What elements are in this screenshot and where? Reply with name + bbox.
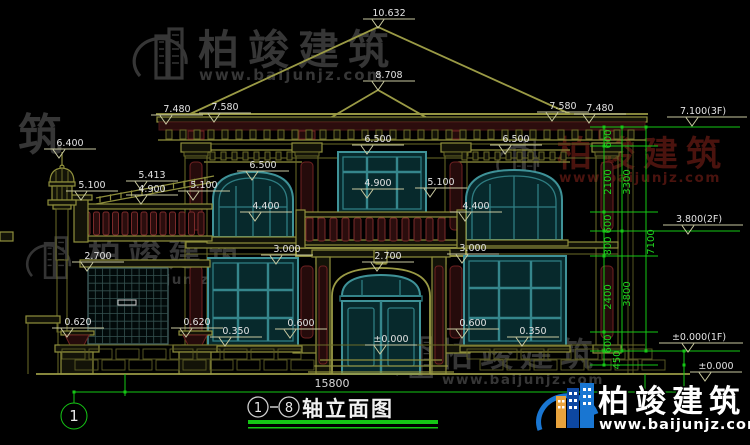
stone xyxy=(264,360,287,370)
baluster xyxy=(189,212,195,235)
baluster xyxy=(198,212,204,235)
dentil xyxy=(243,152,248,160)
baluster xyxy=(113,212,119,235)
marker-text: 6.500 xyxy=(249,160,276,171)
marker-text: ±0.000 xyxy=(373,334,408,345)
dentil xyxy=(320,130,326,139)
dentil xyxy=(232,152,237,160)
dentil xyxy=(265,152,270,160)
marker-text: 0.620 xyxy=(64,317,91,328)
vertical-dim-text: 450 xyxy=(612,350,623,369)
vertical-dim-text: 800 xyxy=(603,236,614,255)
baluster xyxy=(151,212,157,235)
marker-text: 5.413 xyxy=(138,170,165,181)
dentil xyxy=(462,152,467,160)
baluster xyxy=(426,218,433,241)
dentil xyxy=(306,130,312,139)
marker-text: ±0.000 xyxy=(698,361,733,372)
dim-tick xyxy=(621,230,624,233)
baluster xyxy=(414,218,421,241)
baluster xyxy=(366,218,373,241)
baluster xyxy=(318,218,325,241)
baluster xyxy=(141,212,147,235)
dentil xyxy=(539,152,544,160)
dentil xyxy=(404,130,410,139)
stone xyxy=(129,360,152,370)
dentil xyxy=(210,152,215,160)
marker-text: 3.000 xyxy=(459,243,486,254)
dentil xyxy=(287,152,292,160)
dentil xyxy=(446,130,452,139)
baluster xyxy=(179,212,185,235)
axis-bubble: 1 xyxy=(61,403,87,429)
pilaster-cap xyxy=(292,143,322,152)
marker-text: 7.580 xyxy=(549,101,576,112)
stone xyxy=(116,349,139,359)
marker-text: 7.480 xyxy=(163,104,190,115)
elevation-marker: 7.100(3F) xyxy=(667,106,747,126)
baluster xyxy=(170,212,176,235)
marker-text: 6.500 xyxy=(502,134,529,145)
baluster xyxy=(378,218,385,241)
dentil xyxy=(473,152,478,160)
marker-text: 5.100 xyxy=(78,180,105,191)
stone xyxy=(143,349,166,359)
title-underline-thick xyxy=(248,420,438,424)
vertical-dim-text: 600 xyxy=(603,129,614,148)
dentil xyxy=(495,152,500,160)
dentil xyxy=(222,130,228,139)
dentil xyxy=(628,130,634,139)
watermark-url-text: www.baijunjz.com xyxy=(559,170,721,186)
marker-text: 7.100(3F) xyxy=(680,106,726,117)
baluster xyxy=(342,218,349,241)
dentil xyxy=(544,130,550,139)
dentil xyxy=(236,130,242,139)
dentil xyxy=(278,130,284,139)
pilaster-neck xyxy=(184,152,208,156)
marker-text: 5.100 xyxy=(427,177,454,188)
axis-bubble-label: 1 xyxy=(69,407,79,425)
dentil xyxy=(561,152,566,160)
marker-text: 7.480 xyxy=(586,103,613,114)
watermark-url-text: www.baijunjz.com xyxy=(199,66,384,84)
marker-text: 4.400 xyxy=(462,201,489,212)
elevation-marker: ±0.000(1F) xyxy=(659,332,743,352)
marker-triangle xyxy=(699,373,711,382)
dim-tick xyxy=(603,331,606,334)
dim-tick xyxy=(603,126,606,129)
marker-text: 7.580 xyxy=(211,102,238,113)
marker-triangle xyxy=(686,118,698,127)
watermark-logo xyxy=(27,238,70,278)
total-width-dim: 15800 xyxy=(315,377,350,390)
stone xyxy=(156,360,179,370)
dentil xyxy=(558,130,564,139)
marker-text: 0.350 xyxy=(519,326,546,337)
dim-tick xyxy=(621,126,624,129)
stone xyxy=(210,360,233,370)
drawing-title: 轴立面图 xyxy=(302,397,394,421)
stone xyxy=(291,360,314,370)
vertical-dim-text: 3300 xyxy=(622,169,633,194)
marker-text: 5.100 xyxy=(190,180,217,191)
dim-tick xyxy=(603,364,606,367)
marker-text: 0.620 xyxy=(183,317,210,328)
marker-text: 3.000 xyxy=(273,244,300,255)
vertical-dim-text: 600 xyxy=(603,214,614,233)
title-axis-start: 1 xyxy=(254,401,262,416)
dentil xyxy=(432,130,438,139)
dentil xyxy=(614,130,620,139)
dim-tick xyxy=(683,364,686,367)
door-fanlight xyxy=(342,275,420,296)
marker-text: 0.600 xyxy=(287,318,314,329)
baluster xyxy=(306,218,313,241)
dentil xyxy=(488,130,494,139)
marker-text: 6.400 xyxy=(56,138,83,149)
title-axis-end: 8 xyxy=(285,401,293,416)
dentil xyxy=(194,130,200,139)
dim-tick xyxy=(683,350,686,353)
baluster xyxy=(438,218,445,241)
dim-tick xyxy=(645,350,648,353)
baluster xyxy=(390,218,397,241)
baluster xyxy=(132,212,138,235)
left-wing xyxy=(0,152,217,374)
window-1f-right xyxy=(460,256,570,352)
dentil xyxy=(474,130,480,139)
vertical-dim-text: 3800 xyxy=(622,281,633,306)
dentil xyxy=(530,130,536,139)
dim-tick xyxy=(603,211,606,214)
elevation-marker: 4.900 xyxy=(126,184,178,204)
dentil xyxy=(517,152,522,160)
marker-text: 4.400 xyxy=(252,201,279,212)
title-underline-thin xyxy=(248,427,438,429)
pilaster-neck xyxy=(595,152,619,156)
marker-text: ±0.000(1F) xyxy=(672,332,726,343)
marker-text: 3.800(2F) xyxy=(676,214,722,225)
brand-logo-text: 柏竣建筑 xyxy=(598,384,746,420)
vertical-dim-text: 7100 xyxy=(646,229,657,254)
dentil xyxy=(221,152,226,160)
elevation-marker: ±0.000 xyxy=(690,361,742,381)
dentil xyxy=(292,130,298,139)
marker-triangle xyxy=(682,226,694,235)
pilaster-cap xyxy=(181,143,211,152)
dentil xyxy=(180,130,186,139)
marker-text: 6.500 xyxy=(364,134,391,145)
brand-logo-url: www.baijunjz.com xyxy=(599,417,750,433)
baluster xyxy=(354,218,361,241)
marker-text: 0.350 xyxy=(222,326,249,337)
title-block: 1 8 轴立面图 xyxy=(248,397,438,429)
marker-text: 8.708 xyxy=(375,70,402,81)
baluster xyxy=(122,212,128,235)
elevation-drawing: 筑 柏竣建筑 www.baijunjz.com 柏竣建筑 www.baijunj… xyxy=(0,0,750,445)
brand-logo: 柏竣建筑 www.baijunjz.com xyxy=(539,383,750,433)
dentil xyxy=(484,152,489,160)
pilaster-neck xyxy=(295,152,319,156)
watermark-logo xyxy=(134,29,186,78)
entrance xyxy=(308,250,454,374)
dentil xyxy=(586,130,592,139)
dentil xyxy=(418,130,424,139)
baluster xyxy=(94,212,100,235)
cad-elevation-screenshot: 筑 柏竣建筑 www.baijunjz.com 柏竣建筑 www.baijunj… xyxy=(0,0,750,445)
dentil xyxy=(506,152,511,160)
marker-text: 2.700 xyxy=(374,251,401,262)
dentil xyxy=(264,130,270,139)
dentil xyxy=(254,152,259,160)
marker-text: 10.632 xyxy=(372,8,405,19)
dentil xyxy=(550,152,555,160)
elevation-marker: 10.632 xyxy=(363,8,415,28)
dentil xyxy=(208,130,214,139)
brand-logo-tower-blue1 xyxy=(567,388,579,428)
marker-text: 4.900 xyxy=(138,184,165,195)
brand-logo-tower-blue2 xyxy=(580,383,594,428)
marker-text: 2.700 xyxy=(84,251,111,262)
stone xyxy=(102,360,125,370)
baluster xyxy=(160,212,166,235)
dentil xyxy=(334,130,340,139)
dentil xyxy=(460,130,466,139)
vertical-dim-text: 2400 xyxy=(603,284,614,309)
dentil xyxy=(572,130,578,139)
vertical-dim-text: 2100 xyxy=(603,169,614,194)
marker-text: 4.900 xyxy=(364,178,391,189)
marker-text: 0.600 xyxy=(459,318,486,329)
dentil xyxy=(250,130,256,139)
stone xyxy=(237,360,260,370)
dentil xyxy=(166,130,172,139)
dentil xyxy=(528,152,533,160)
dim-tick xyxy=(645,126,648,129)
dentil xyxy=(348,130,354,139)
dentil xyxy=(276,152,281,160)
baluster xyxy=(402,218,409,241)
baluster xyxy=(103,212,109,235)
pilaster-cap xyxy=(441,143,471,152)
baluster xyxy=(330,218,337,241)
